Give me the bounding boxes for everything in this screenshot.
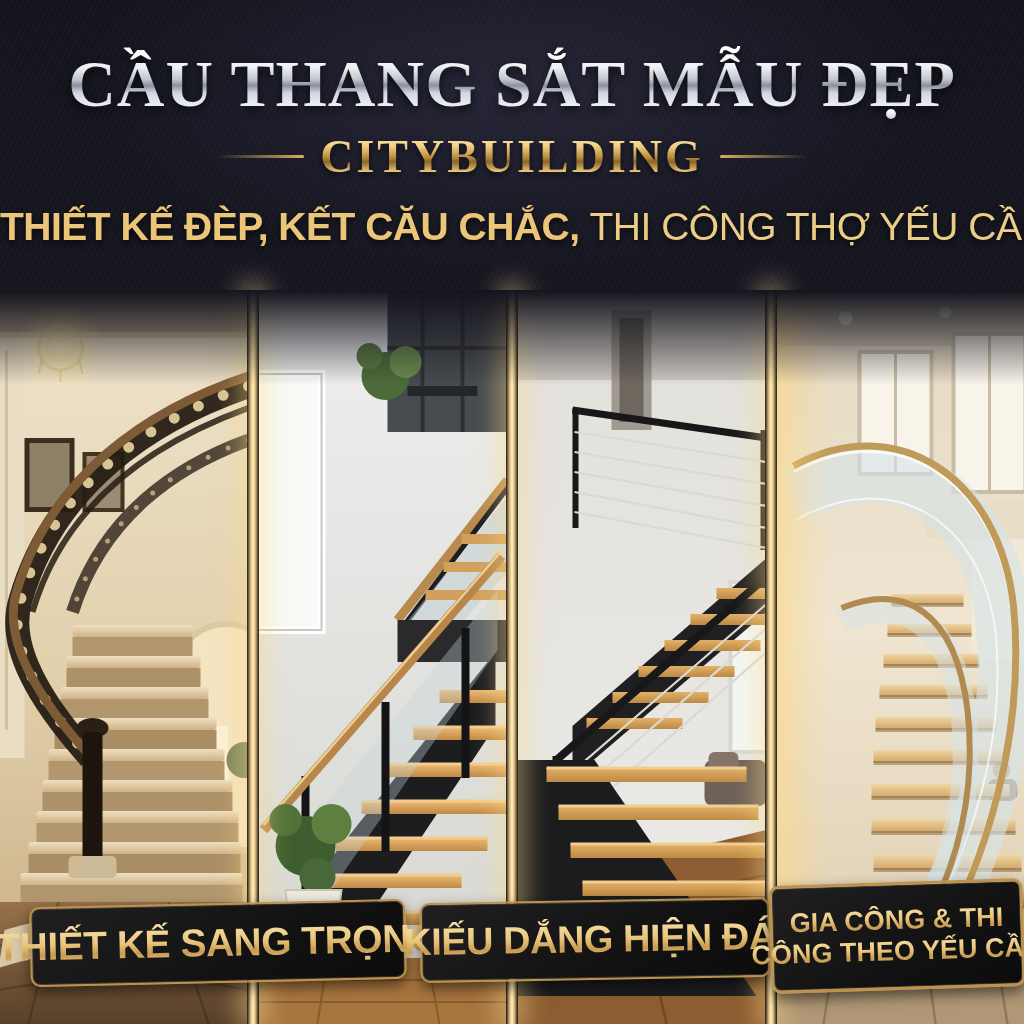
badge-custom-fabrication: GIA CÔNG & THI CÔNG THEO YẾU CẦU xyxy=(768,878,1024,994)
badge-luxury-design-label: THIẾT KẾ SANG TRỌNG xyxy=(0,916,440,971)
tagline-bold: THIẾT KẾ ĐÈP, KẾT CĂU CHẮC, xyxy=(0,205,580,248)
poster-header: CẦU THANG SẮT MẪU ĐẸP CITYBUILDING THIẾT… xyxy=(0,0,1024,249)
staircase-ad-poster: CẦU THANG SẮT MẪU ĐẸP CITYBUILDING THIẾT… xyxy=(0,0,1024,1024)
badge-modern-style-label: KIẾU DẮNG HIỆN ĐÁI xyxy=(404,915,786,965)
header-photo-fade xyxy=(0,290,1024,385)
gold-rule-left xyxy=(216,155,304,158)
brand-name: CITYBUILDING xyxy=(320,130,704,183)
brand-row: CITYBUILDING xyxy=(0,130,1024,183)
tagline: THIẾT KẾ ĐÈP, KẾT CĂU CHẮC,THI CÔNG THỢ … xyxy=(0,205,1024,249)
page-title: CẦU THANG SẮT MẪU ĐẸP xyxy=(0,46,1024,122)
tagline-regular: THI CÔNG THỢ YẾU CẦU xyxy=(590,205,1024,248)
badge-luxury-design: THIẾT KẾ SANG TRỌNG xyxy=(29,899,407,988)
badge-modern-style: KIẾU DẮNG HIỆN ĐÁI xyxy=(419,897,770,983)
gold-rule-right xyxy=(720,155,808,158)
